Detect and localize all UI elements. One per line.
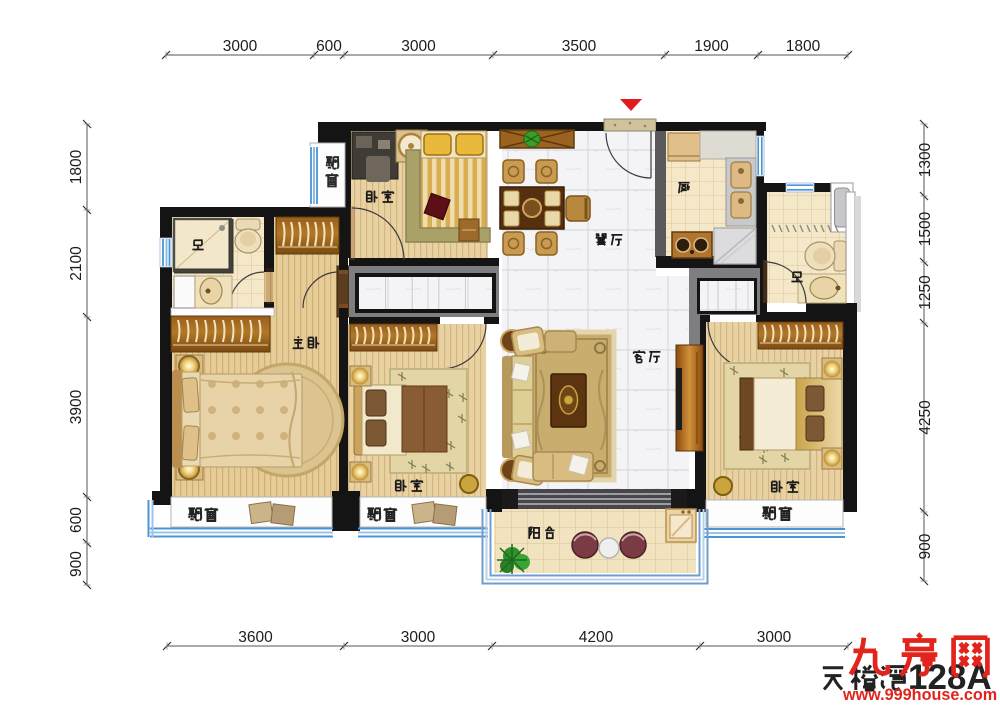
svg-text:900: 900 (917, 533, 934, 559)
svg-text:3900: 3900 (68, 389, 85, 424)
svg-text:4250: 4250 (917, 400, 934, 435)
svg-text:3000: 3000 (223, 38, 258, 55)
svg-text:1800: 1800 (786, 38, 821, 55)
svg-text:3000: 3000 (757, 629, 792, 646)
svg-text:4200: 4200 (579, 629, 614, 646)
svg-text:1250: 1250 (917, 275, 934, 310)
svg-text:3000: 3000 (401, 629, 436, 646)
svg-text:3600: 3600 (238, 629, 273, 646)
svg-text:2100: 2100 (68, 246, 85, 281)
svg-text:1500: 1500 (917, 211, 934, 246)
svg-text:900: 900 (68, 551, 85, 577)
svg-text:1300: 1300 (917, 142, 934, 177)
svg-text:600: 600 (316, 38, 342, 55)
svg-text:1900: 1900 (694, 38, 729, 55)
svg-text:1800: 1800 (68, 149, 85, 184)
svg-text:3500: 3500 (562, 38, 597, 55)
svg-text:600: 600 (68, 507, 85, 533)
svg-text:3000: 3000 (401, 38, 436, 55)
svg-text:www.999house.com: www.999house.com (842, 686, 997, 704)
